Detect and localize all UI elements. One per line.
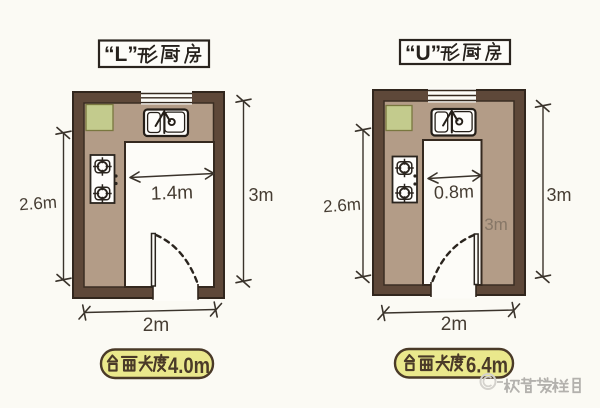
- svg-text:1.4m: 1.4m: [150, 182, 193, 204]
- svg-text:2.6m: 2.6m: [19, 193, 58, 215]
- svg-text:“U”: “U”: [405, 42, 441, 65]
- svg-text:“L”: “L”: [104, 43, 138, 66]
- svg-text:0.8m: 0.8m: [434, 181, 475, 202]
- svg-text:2m: 2m: [441, 314, 467, 335]
- svg-text:4.0m: 4.0m: [168, 353, 210, 378]
- svg-text:2m: 2m: [143, 315, 169, 336]
- svg-text:3m: 3m: [546, 185, 571, 205]
- svg-text:2.6m: 2.6m: [323, 195, 362, 217]
- svg-text:3m: 3m: [484, 215, 508, 234]
- svg-text:3m: 3m: [248, 185, 273, 205]
